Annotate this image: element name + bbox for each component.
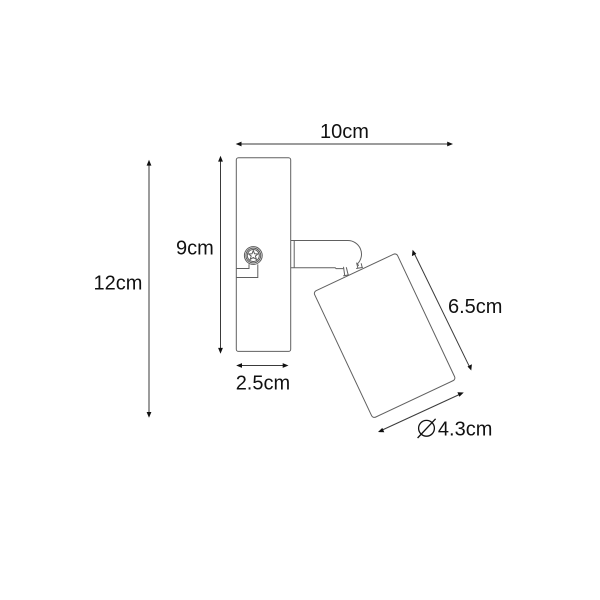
svg-text:2.5cm: 2.5cm <box>236 373 290 395</box>
svg-text:9cm: 9cm <box>176 238 214 260</box>
svg-text:12cm: 12cm <box>94 273 143 295</box>
svg-text:6.5cm: 6.5cm <box>448 296 502 318</box>
svg-text:4.3cm: 4.3cm <box>438 419 492 441</box>
svg-text:10cm: 10cm <box>320 121 369 143</box>
